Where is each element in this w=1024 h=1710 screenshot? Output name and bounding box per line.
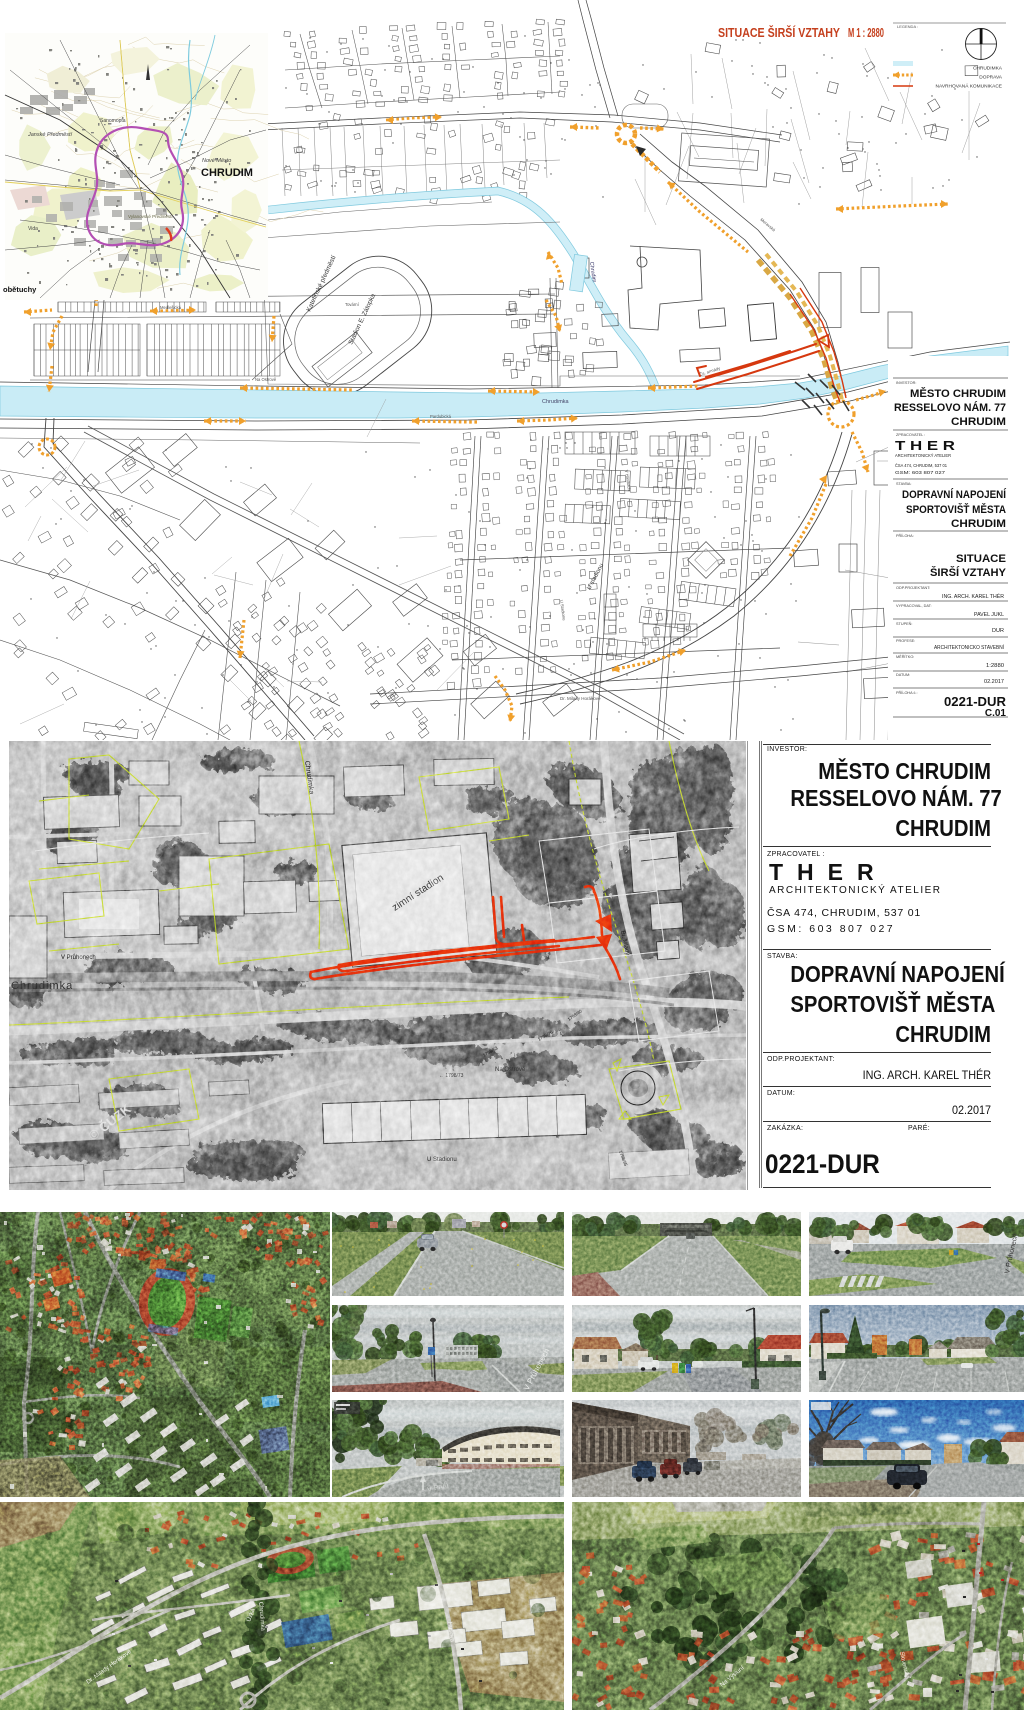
svg-text:Dr. Milady Horákové: Dr. Milady Horákové — [560, 696, 601, 701]
svg-text:STUPEŇ:: STUPEŇ: — [896, 621, 912, 626]
svg-text:0221-DUR: 0221-DUR — [944, 694, 1007, 709]
svg-text:MĚŘÍTKO:: MĚŘÍTKO: — [896, 654, 914, 659]
svg-text:SITUACE: SITUACE — [956, 553, 1006, 565]
svg-text:Janské Předměstí: Janské Předměstí — [27, 132, 72, 138]
svg-text:ARCHITEKTONICKÝ ATELIER: ARCHITEKTONICKÝ ATELIER — [895, 452, 952, 458]
svg-text:Vida: Vida — [28, 226, 38, 232]
svg-text:Pardubická: Pardubická — [430, 414, 452, 419]
svg-text:ŠIRŠÍ VZTAHY: ŠIRŠÍ VZTAHY — [930, 566, 1007, 579]
svg-text:Tovární: Tovární — [345, 302, 360, 307]
svg-text:CHRUDIM: CHRUDIM — [951, 518, 1006, 530]
svg-text:PŘÍLOHA:: PŘÍLOHA: — [896, 533, 914, 538]
svg-text:MĚSTO CHRUDIM: MĚSTO CHRUDIM — [910, 387, 1006, 400]
svg-text:02.2017: 02.2017 — [984, 679, 1004, 685]
svg-text:ZPRACOVATEL :: ZPRACOVATEL : — [896, 433, 925, 437]
svg-text:ING. ARCH. KAREL THÉR: ING. ARCH. KAREL THÉR — [942, 593, 1004, 600]
svg-text:RESSELOVO NÁM. 77: RESSELOVO NÁM. 77 — [894, 401, 1006, 414]
svg-text:PROFESE:: PROFESE: — [896, 639, 915, 643]
svg-text:VYPRACOVAL, DAT:: VYPRACOVAL, DAT: — [896, 604, 932, 608]
svg-text:Chrudimka: Chrudimka — [542, 399, 570, 405]
svg-text:CHRUDIMKA: CHRUDIMKA — [973, 66, 1003, 72]
svg-text:M 1 : 2880: M 1 : 2880 — [848, 26, 884, 40]
svg-text:Vylanovské Předměstí: Vylanovské Předměstí — [128, 214, 173, 219]
svg-text:SPORTOVIŠŤ MĚSTA: SPORTOVIŠŤ MĚSTA — [906, 503, 1006, 516]
svg-text:SITUACE ŠIRŠÍ VZTAHY: SITUACE ŠIRŠÍ VZTAHY — [718, 25, 841, 40]
svg-text:NAVRHOVANÁ KOMUNIKACE: NAVRHOVANÁ KOMUNIKACE — [936, 83, 1002, 90]
svg-text:LEGENDA :: LEGENDA : — [897, 24, 918, 29]
svg-text:ODP.PROJEKTANT:: ODP.PROJEKTANT: — [896, 586, 930, 590]
svg-text:Medlešická: Medlešická — [160, 305, 182, 310]
svg-text:DATUM:: DATUM: — [896, 673, 910, 677]
svg-text:PAVEL JUKL: PAVEL JUKL — [974, 612, 1004, 618]
svg-text:C.01: C.01 — [985, 708, 1007, 719]
svg-text:DOPRAVA: DOPRAVA — [979, 75, 1003, 81]
svg-text:STAVBA:: STAVBA: — [896, 482, 911, 486]
svg-text:Sanomopta: Sanomopta — [100, 118, 126, 124]
svg-text:INVESTOR:: INVESTOR: — [896, 381, 916, 385]
svg-text:DUR: DUR — [992, 628, 1004, 634]
svg-text:GSM: 603 807 027: GSM: 603 807 027 — [895, 470, 946, 475]
svg-text:ARCHITEKTONICKO STAVEBNÍ: ARCHITEKTONICKO STAVEBNÍ — [934, 644, 1005, 651]
svg-text:obětuchy: obětuchy — [3, 285, 37, 294]
svg-text:CHRUDIM: CHRUDIM — [951, 416, 1006, 428]
svg-text:T H E R: T H E R — [895, 438, 956, 453]
svg-text:PŘÍLOHA č.:: PŘÍLOHA č.: — [896, 690, 918, 695]
svg-text:Nové Město: Nové Město — [202, 158, 231, 164]
svg-text:1:2880: 1:2880 — [986, 663, 1004, 669]
svg-text:ČSA 474, CHRUDIM, 537 01: ČSA 474, CHRUDIM, 537 01 — [895, 462, 947, 468]
svg-text:CHRUDIM: CHRUDIM — [201, 167, 253, 179]
svg-text:Na Ostrově: Na Ostrově — [255, 377, 277, 382]
svg-text:DOPRAVNÍ NAPOJENÍ: DOPRAVNÍ NAPOJENÍ — [902, 488, 1007, 501]
